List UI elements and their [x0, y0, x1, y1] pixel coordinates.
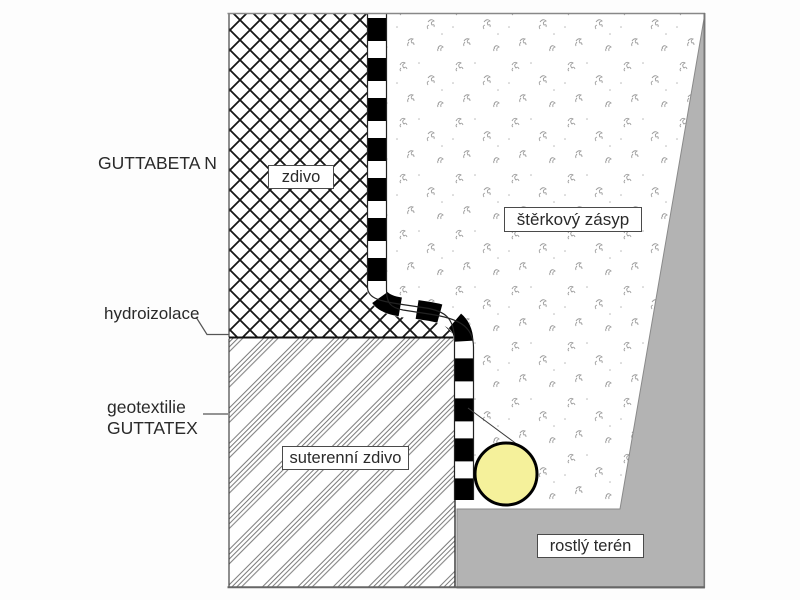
- geotextile-label: geotextilie GUTTATEX: [107, 397, 198, 439]
- waterproofing-label: hydroizolace: [104, 304, 199, 324]
- construction-detail-drawing: [0, 0, 800, 600]
- product-label: GUTTABETA N: [98, 153, 217, 174]
- diagram-canvas: GUTTABETA N zdivo štěrkový zásyp hydroiz…: [0, 0, 800, 600]
- geotextile-label-line2: GUTTATEX: [107, 418, 198, 439]
- gravel-backfill-label: štěrkový zásyp: [504, 207, 642, 232]
- drain-pipe: [475, 443, 537, 505]
- geotextile-label-line1: geotextilie: [107, 397, 198, 418]
- waterproofing-leader-line: [196, 317, 229, 335]
- natural-ground-label: rostlý terén: [537, 534, 644, 558]
- wall-label: zdivo: [268, 165, 334, 189]
- basement-wall-label: suterenní zdivo: [282, 446, 409, 470]
